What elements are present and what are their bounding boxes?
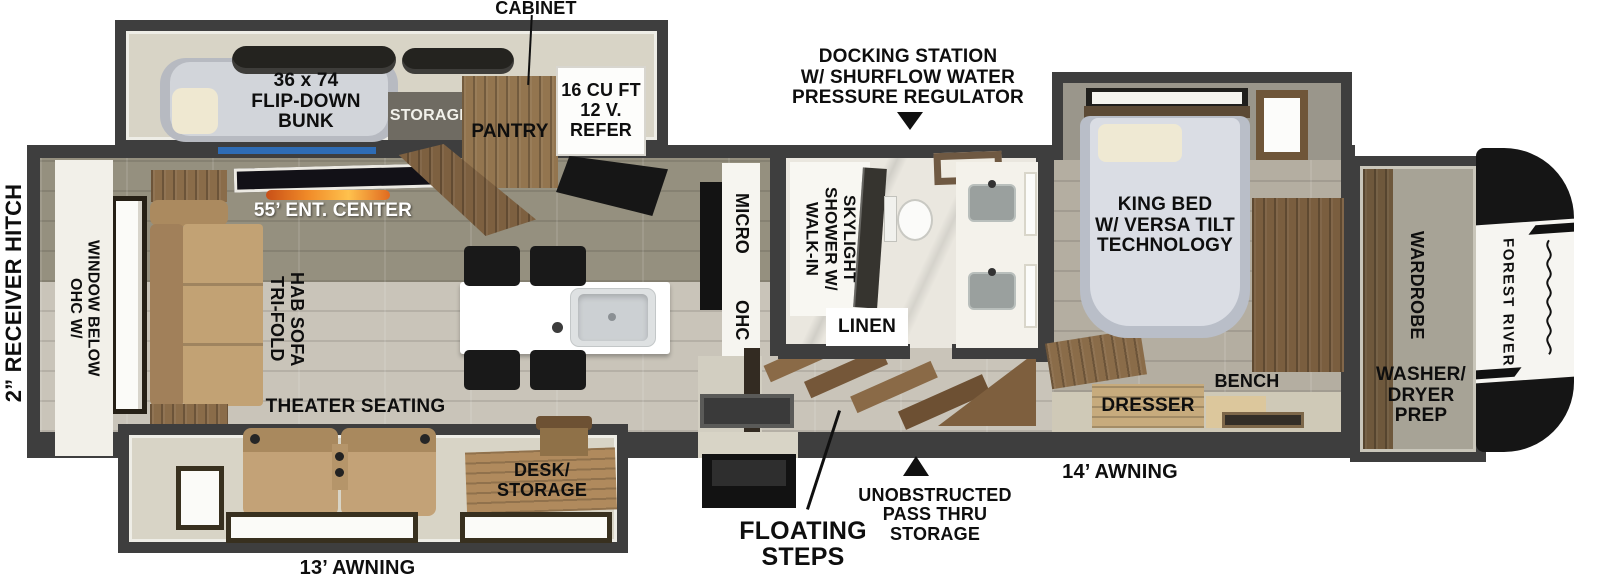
rv-floorplan: 36 x 74 FLIP-DOWN BUNK STORAGE PANTRY 16… [0, 0, 1600, 583]
ent-center-label: 55’ ENT. CENTER [243, 199, 423, 223]
ohc-label: OHC [722, 282, 760, 358]
awning-13-label: 13’ AWNING [250, 556, 465, 580]
theater-seat-1 [243, 452, 338, 516]
sofa-console-bottom [150, 404, 228, 426]
pantry-label: PANTRY [458, 120, 562, 144]
entry-step-top [712, 460, 786, 486]
sofa-seats [183, 224, 263, 406]
island-chair-1 [464, 246, 520, 286]
refer-label: 16 CU FT 12 V. REFER [556, 68, 646, 154]
sofa-label: TRI-FOLD HAB SOFA [262, 248, 310, 390]
bath-wall-bottom-1 [778, 344, 910, 359]
sink-drain [608, 313, 616, 321]
sink-faucet [552, 322, 563, 333]
wardrobe-label: WARDROBE [1394, 200, 1438, 370]
cupholder-1 [335, 452, 344, 461]
washer-dryer-label: WASHER/ DRYER PREP [1364, 364, 1478, 428]
desk-chair [540, 428, 588, 456]
awning-14-label: 14’ AWNING [1036, 460, 1204, 484]
slide-window-1 [226, 512, 418, 543]
dresser-label: DRESSER [1092, 384, 1204, 428]
toilet-bowl [897, 199, 933, 241]
cupholder-2 [335, 468, 344, 477]
accent-light-strip [218, 147, 376, 154]
microwave-tower [700, 182, 722, 310]
micro-label: MICRO [722, 168, 760, 278]
docking-callout: DOCKING STATION W/ SHURFLOW WATER PRESSU… [780, 48, 1036, 108]
floor-vent [1222, 412, 1304, 428]
bunk-pillow [172, 88, 218, 134]
bedroom-slide-door [1252, 198, 1344, 372]
king-bed-pillow [1098, 124, 1182, 162]
cap-stripe-top [1528, 221, 1574, 235]
vanity-faucet-2 [988, 268, 996, 276]
sofa-backrest [150, 224, 184, 406]
rear-window [111, 196, 147, 414]
sofa-console-top [151, 170, 227, 202]
ohc-window-label: OHC W/ WINDOW BELOW [55, 160, 113, 456]
bed-slide-window [1092, 92, 1242, 104]
sofa-armrest [150, 200, 228, 226]
sofa-seam-2 [183, 343, 263, 346]
vanity-window-2 [1024, 264, 1037, 328]
entry-door-mat [700, 394, 794, 428]
theater-label: THEATER SEATING [248, 396, 463, 418]
passthru-arrow-up-icon [903, 456, 929, 476]
slide-window-2 [460, 512, 612, 543]
bench-label: BENCH [1204, 372, 1290, 392]
receiver-hitch-label: 2” RECEIVER HITCH [1, 153, 27, 433]
front-cap: FOREST RIVER [1476, 148, 1574, 452]
slide-window-left [176, 466, 224, 530]
passthru-callout: UNOBSTRUCTED PASS THRU STORAGE [840, 484, 1030, 546]
island-chair-2 [530, 246, 586, 286]
theater-console [332, 444, 348, 490]
vanity-window-1 [1024, 172, 1037, 236]
toilet-tank [884, 196, 897, 242]
vanity-faucet-1 [988, 180, 996, 188]
bedroom-window [1256, 90, 1308, 160]
seat-speaker-2 [420, 434, 430, 444]
linen-label: LINEN [826, 308, 908, 346]
brand-label: FOREST RIVER [1494, 228, 1520, 376]
cabinet-callout: CABINET [484, 0, 588, 17]
island-chair-3 [464, 350, 520, 390]
vanity-sink-1 [968, 184, 1016, 222]
king-bed-label: KING BED W/ VERSA TILT TECHNOLOGY [1084, 192, 1246, 260]
docking-arrow-down-icon [897, 112, 923, 130]
seat-speaker-1 [250, 434, 260, 444]
bath-wall-right [1036, 158, 1054, 362]
bunk-window-2 [402, 48, 514, 74]
brand-signature-icon [1540, 238, 1558, 361]
island-chair-4 [530, 350, 586, 390]
bath-wall-left [770, 158, 786, 356]
front-cap-band: FOREST RIVER [1476, 219, 1574, 384]
desk-label: DESK/ STORAGE [486, 458, 598, 504]
theater-seat-2 [341, 452, 436, 516]
sofa-seam-1 [183, 283, 263, 286]
vanity-sink-2 [968, 272, 1016, 310]
bunk-label: 36 x 74 FLIP-DOWN BUNK [226, 70, 386, 134]
